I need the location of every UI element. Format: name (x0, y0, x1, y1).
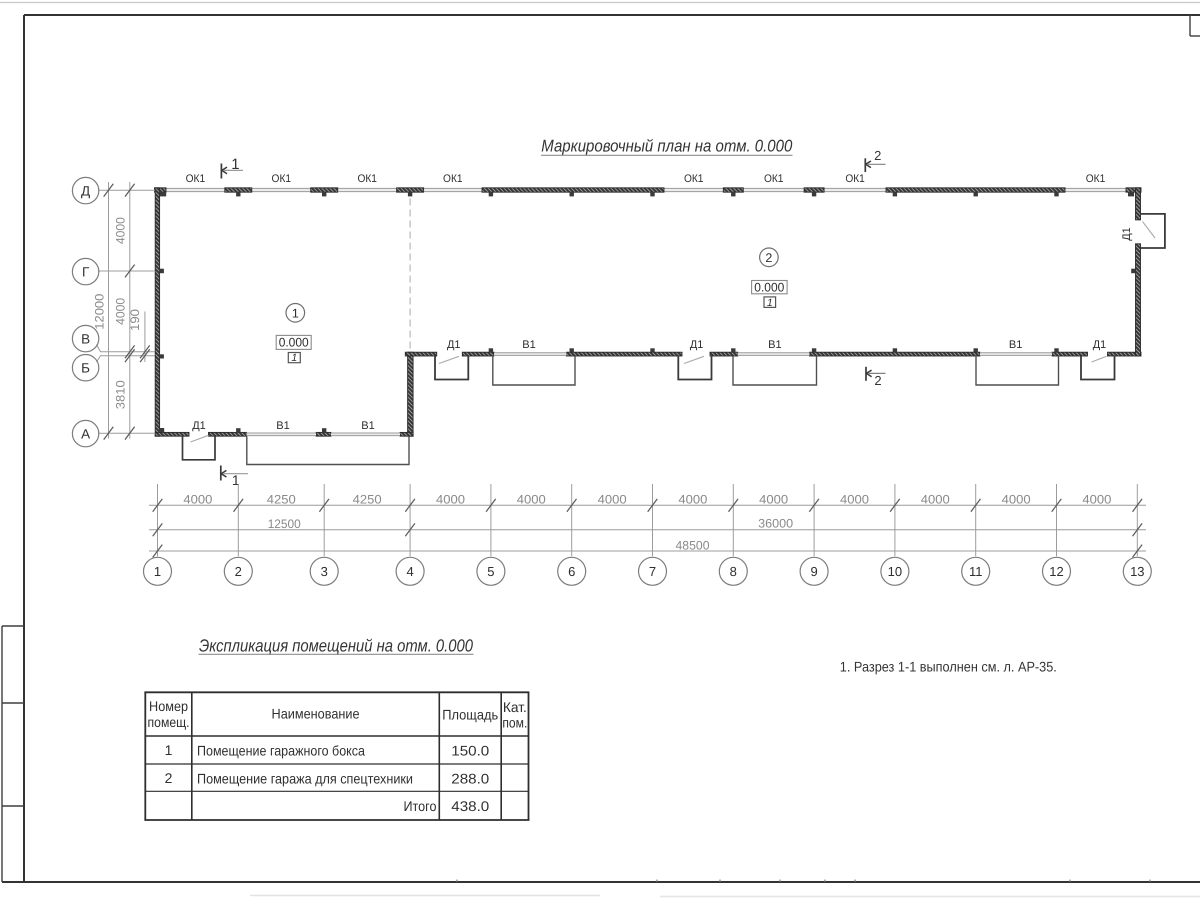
svg-text:12500: 12500 (268, 517, 301, 531)
svg-text:4000: 4000 (921, 492, 950, 506)
svg-text:7: 7 (649, 564, 656, 579)
svg-text:1. Разрез 1-1 выполнен см. л.: 1. Разрез 1-1 выполнен см. л. АР-35. (840, 659, 1057, 675)
svg-text:6: 6 (568, 564, 575, 579)
svg-text:Д1: Д1 (192, 420, 206, 432)
svg-text:Итого: Итого (404, 798, 437, 814)
svg-text:Д1: Д1 (690, 339, 704, 351)
svg-text:4000: 4000 (759, 492, 788, 506)
svg-text:4000: 4000 (436, 492, 465, 506)
svg-text:Д1: Д1 (1121, 227, 1133, 241)
svg-text:4000: 4000 (183, 492, 212, 506)
svg-text:В: В (81, 332, 90, 347)
svg-text:1: 1 (154, 564, 161, 579)
svg-text:Д1: Д1 (447, 339, 461, 351)
svg-text:Экспликация помещений на отм.: Экспликация помещений на отм. 0.000 (199, 636, 473, 656)
svg-text:В1: В1 (768, 339, 782, 351)
svg-text:4250: 4250 (353, 492, 382, 506)
svg-text:1: 1 (231, 156, 239, 173)
svg-text:Наименование: Наименование (272, 706, 360, 722)
svg-text:0.000: 0.000 (754, 280, 784, 294)
svg-text:2: 2 (165, 770, 173, 786)
svg-text:1: 1 (291, 352, 297, 364)
svg-text:4000: 4000 (113, 217, 127, 244)
svg-text:5: 5 (487, 564, 494, 579)
svg-text:288.0: 288.0 (451, 771, 489, 787)
svg-text:150.0: 150.0 (451, 743, 489, 759)
svg-text:2: 2 (235, 564, 242, 579)
svg-text:Помещение гаража для спецтехни: Помещение гаража для спецтехники (197, 771, 413, 787)
svg-text:Д: Д (81, 184, 90, 199)
svg-text:12000: 12000 (92, 294, 106, 330)
svg-text:2: 2 (874, 373, 881, 388)
svg-text:4000: 4000 (1002, 492, 1031, 506)
svg-text:ОК1: ОК1 (186, 173, 206, 185)
svg-text:Площадь: Площадь (442, 707, 498, 723)
svg-text:12: 12 (1049, 564, 1063, 579)
svg-text:4000: 4000 (113, 298, 127, 325)
svg-text:Маркировочный план на отм. 0.0: Маркировочный план на отм. 0.000 (541, 137, 792, 156)
svg-text:13: 13 (1130, 564, 1144, 579)
svg-text:ОК1: ОК1 (1086, 173, 1106, 185)
svg-text:9: 9 (810, 564, 817, 579)
svg-text:3: 3 (321, 564, 328, 579)
svg-text:4: 4 (406, 564, 413, 579)
svg-text:8: 8 (730, 564, 737, 579)
svg-text:1: 1 (292, 306, 299, 320)
svg-text:10: 10 (888, 564, 902, 579)
svg-text:4000: 4000 (678, 492, 707, 506)
svg-text:В1: В1 (276, 420, 290, 432)
svg-text:В1: В1 (1009, 339, 1023, 351)
svg-text:2: 2 (874, 148, 881, 163)
svg-text:ОК1: ОК1 (357, 173, 377, 185)
svg-text:2: 2 (765, 251, 772, 265)
svg-text:4000: 4000 (517, 492, 546, 506)
svg-text:0.000: 0.000 (279, 336, 309, 350)
svg-text:В1: В1 (522, 339, 536, 351)
svg-text:В1: В1 (361, 420, 375, 432)
svg-text:ОК1: ОК1 (684, 173, 704, 185)
svg-text:Г: Г (82, 265, 90, 280)
svg-text:ОК1: ОК1 (272, 173, 292, 185)
svg-text:11: 11 (969, 564, 983, 579)
svg-text:4000: 4000 (598, 492, 627, 506)
svg-text:Помещение гаражного бокса: Помещение гаражного бокса (197, 743, 365, 759)
svg-text:48500: 48500 (676, 538, 710, 552)
svg-text:4000: 4000 (840, 492, 869, 506)
svg-text:пом.: пом. (502, 715, 527, 731)
svg-text:помещ.: помещ. (148, 714, 190, 730)
svg-text:1: 1 (767, 297, 773, 309)
svg-text:4000: 4000 (1082, 492, 1111, 506)
svg-text:438.0: 438.0 (451, 798, 489, 814)
svg-text:4250: 4250 (267, 492, 296, 506)
svg-text:Номер: Номер (149, 698, 188, 714)
svg-text:Кат.: Кат. (503, 699, 527, 715)
svg-text:ОК1: ОК1 (764, 173, 784, 185)
svg-text:190: 190 (128, 309, 142, 331)
svg-text:А: А (81, 427, 90, 442)
svg-text:36000: 36000 (758, 516, 793, 530)
svg-text:Б: Б (81, 361, 90, 376)
svg-text:ОК1: ОК1 (443, 173, 463, 185)
svg-text:3810: 3810 (113, 380, 127, 409)
svg-text:ОК1: ОК1 (845, 173, 865, 185)
svg-text:Д1: Д1 (1093, 339, 1107, 351)
svg-text:1: 1 (165, 742, 173, 758)
